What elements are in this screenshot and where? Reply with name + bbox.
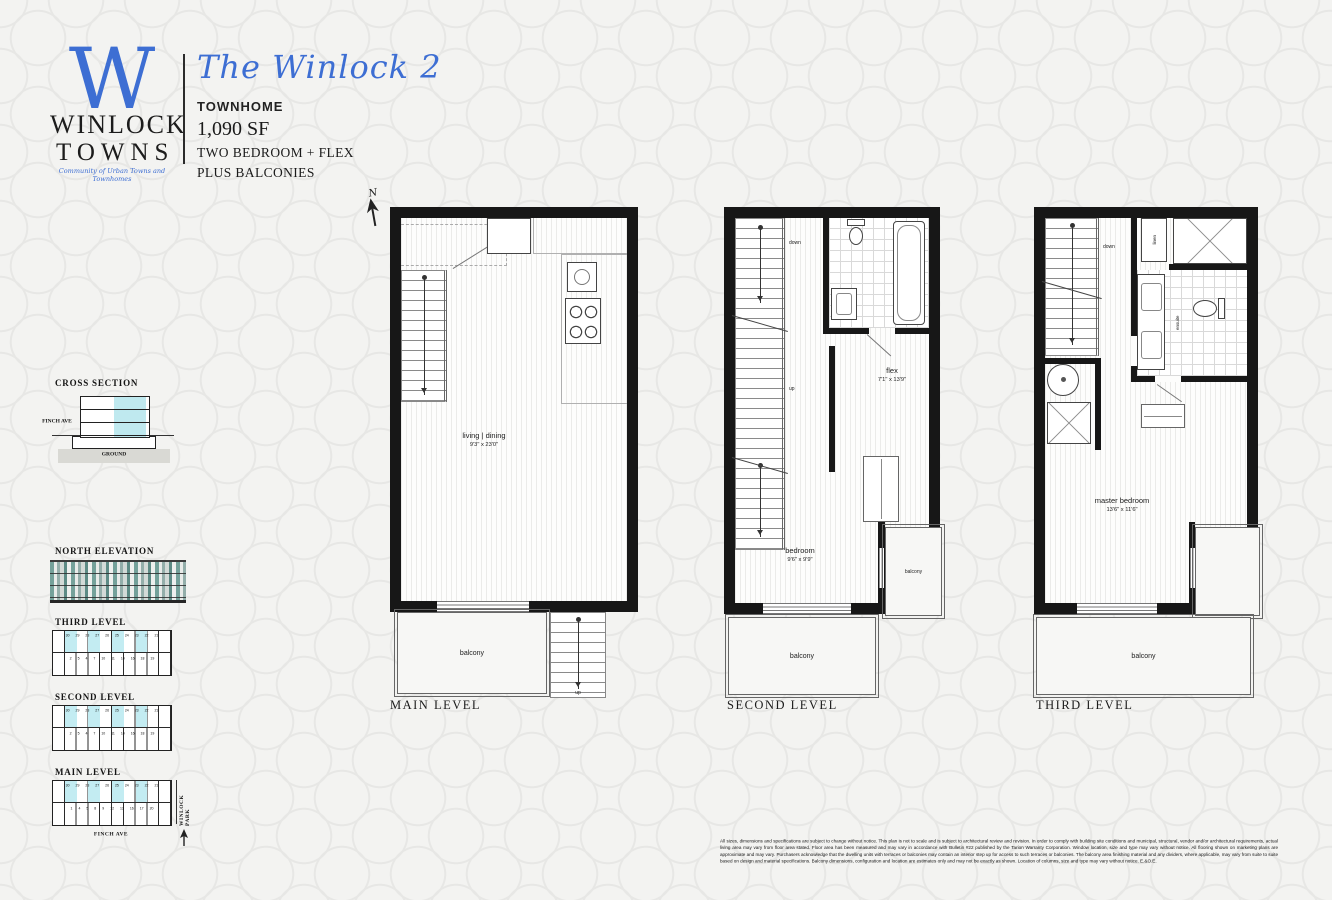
stairs	[735, 218, 785, 550]
keyplan-main-level: MAIN LEVEL 30 29 28 27 26 25 24 23 22 21…	[50, 767, 220, 857]
toilet-tank	[847, 219, 865, 226]
building-section	[80, 396, 150, 438]
unit-area: 1,090 SF	[197, 118, 557, 141]
keyplan-main-strip: 30 29 28 27 26 25 24 23 22 21 1 4 5 8 9 …	[52, 780, 172, 826]
unit-numbers-bottom: 2 5 4 7 10 11 14 16 18 19	[53, 657, 171, 661]
down-label: down	[1103, 244, 1115, 250]
street-label: FINCH AVE	[52, 831, 170, 837]
wall	[823, 218, 829, 334]
keyplan-main-title: MAIN LEVEL	[55, 767, 121, 777]
building-type: TOWNHOME	[197, 99, 557, 114]
toilet	[849, 227, 863, 245]
washer-knob	[1061, 377, 1066, 382]
wall	[1095, 360, 1101, 450]
keyplan-second-title: SECOND LEVEL	[55, 692, 135, 702]
cross-section-diagram: FINCH AVE GROUND	[50, 394, 190, 470]
balcony-label: balcony	[1131, 653, 1155, 660]
exterior-stairs: up	[550, 612, 606, 698]
wall	[829, 346, 835, 472]
toilet	[1193, 300, 1217, 317]
brand-monogram: W	[50, 42, 174, 118]
cross-section: CROSS SECTION FINCH AVE GROUND	[50, 378, 190, 474]
unit-numbers-bottom: 2 5 4 7 10 11 14 16 18 19	[53, 732, 171, 736]
window	[879, 548, 884, 588]
street-label: FINCH AVE	[42, 418, 72, 425]
closet	[863, 456, 899, 522]
linen-closet: linen	[1141, 218, 1167, 262]
brand-name-top: WINLOCK	[50, 112, 174, 138]
stair-direction-arrow	[1072, 225, 1073, 345]
floorplan-second-level: down up flex 7'1" x 13'9" bedroom 9'6" x…	[724, 207, 954, 717]
ground-label: GROUND	[84, 451, 144, 457]
closet-rod	[1144, 416, 1182, 417]
stove	[565, 298, 601, 344]
north-elevation-title: NORTH ELEVATION	[55, 546, 154, 556]
north-elevation: NORTH ELEVATION	[50, 546, 200, 604]
feature-line-1: TWO BEDROOM + FLEX	[197, 145, 557, 161]
keyplan-second-level: SECOND LEVEL 30 29 28 27 26 25 24 23 22 …	[50, 692, 200, 758]
stair-direction-arrow	[578, 619, 579, 689]
wall	[823, 328, 869, 334]
room-label-master-bedroom: master bedroom 13'6" x 11'6"	[1062, 496, 1182, 513]
ensuite-label: ensuite	[1175, 290, 1180, 330]
unit-numbers-top: 30 29 28 27 26 25 24 23 22 21	[53, 784, 171, 788]
sink-basin	[1141, 283, 1162, 311]
bathtub	[893, 221, 925, 325]
keyplan-second-strip: 30 29 28 27 26 25 24 23 22 21 2 5 4 7 10…	[52, 705, 172, 751]
elevation-drawing	[50, 560, 186, 603]
stair-direction-arrow	[760, 465, 761, 537]
keyplan-third-title: THIRD LEVEL	[55, 617, 126, 627]
room-label-flex: flex 7'1" x 13'9"	[832, 366, 952, 383]
fridge	[487, 218, 531, 254]
cross-section-title: CROSS SECTION	[55, 378, 138, 388]
stair-direction-arrow	[760, 227, 761, 303]
plan-caption-main: MAIN LEVEL	[390, 698, 481, 713]
sink-basin	[836, 293, 852, 315]
unit-numbers-top: 30 29 28 27 26 25 24 23 22 21	[53, 709, 171, 713]
wall	[895, 328, 929, 334]
tub-basin	[897, 225, 921, 321]
bathroom-sink	[831, 288, 857, 320]
closet-rod	[881, 459, 882, 519]
sink-basin	[1141, 331, 1162, 359]
header-divider	[183, 54, 185, 164]
balcony-side	[1195, 527, 1260, 616]
unit-outline: down linen ensuite master bedroom 13'6"	[1034, 207, 1258, 614]
balcony-side-label: balcony	[905, 569, 922, 575]
up-label: up	[789, 386, 795, 392]
room-label-living-dining: living | dining 9'3" x 23'0"	[424, 431, 544, 448]
floorplan-main-level: living | dining 9'3" x 23'0" balcony up …	[390, 207, 650, 717]
double-vanity	[1137, 274, 1165, 370]
door-swing	[1157, 384, 1182, 402]
down-label: down	[789, 240, 801, 246]
highlighted-unit-stack	[114, 397, 147, 437]
balcony: balcony	[1036, 617, 1251, 695]
wall	[1131, 376, 1247, 382]
door-opening	[1155, 376, 1181, 382]
brand-logo: W WINLOCK TOWNS Community of Urban Towns…	[50, 42, 174, 183]
washer	[1047, 364, 1079, 396]
keyplan-main-numbers: 30 29 28 27 26 25 24 23 22 21 1 4 5 8 9 …	[53, 781, 171, 825]
up-label: up	[551, 690, 605, 696]
disclaimer-block: All sizes, dimensions and specifications…	[720, 838, 1280, 878]
park-label: WINLOCK PARK	[179, 780, 191, 826]
keyplan-third-strip: 30 29 28 27 26 25 24 23 22 21 2 5 4 7 10…	[52, 630, 172, 676]
room-label-bedroom: bedroom 9'6" x 9'9"	[740, 546, 860, 563]
balcony: balcony	[728, 617, 876, 695]
kitchen-counter-top	[533, 218, 627, 254]
unit-numbers-top: 30 29 28 27 26 25 24 23 22 21	[53, 634, 171, 638]
window	[763, 603, 851, 614]
stair-break-line	[732, 315, 788, 332]
balcony-side: balcony	[885, 527, 942, 616]
stairs	[401, 270, 447, 402]
feature-line-2: PLUS BALCONIES	[197, 165, 557, 181]
wall	[1045, 358, 1101, 364]
balcony-label: balcony	[460, 650, 484, 657]
header: The Winlock 2 TOWNHOME 1,090 SF TWO BEDR…	[197, 48, 557, 181]
disclaimer-text: All sizes, dimensions and specifications…	[720, 838, 1278, 865]
window	[437, 601, 529, 612]
brand-name-bottom: TOWNS	[50, 140, 174, 165]
plan-caption-second: SECOND LEVEL	[727, 698, 838, 713]
window	[1190, 548, 1195, 588]
stair-direction-arrow	[424, 277, 425, 395]
page-title: The Winlock 2	[197, 48, 557, 86]
toilet-tank	[1218, 298, 1225, 319]
sink-basin	[574, 269, 590, 285]
shower	[1173, 218, 1247, 264]
park-boundary-line	[176, 780, 177, 824]
unit-outline: living | dining 9'3" x 23'0"	[390, 207, 638, 612]
laundry-closet	[1047, 402, 1091, 444]
stairs	[1045, 218, 1099, 356]
floorplan-third-level: down linen ensuite master bedroom 13'6"	[1034, 207, 1269, 717]
plan-caption-third: THIRD LEVEL	[1036, 698, 1133, 713]
closet	[1141, 404, 1185, 428]
north-label: N	[368, 187, 379, 199]
unit-numbers-bottom: 1 4 5 8 9 12 13 16 17 20	[53, 807, 171, 811]
keyplan-second-numbers: 30 29 28 27 26 25 24 23 22 21 2 5 4 7 10…	[53, 706, 171, 750]
keyplan-north-arrow-icon	[178, 829, 190, 852]
kitchen-sink	[567, 262, 597, 292]
window	[1077, 603, 1157, 614]
balcony-label: balcony	[790, 653, 814, 660]
door-swing	[867, 334, 892, 356]
unit-outline: down up flex 7'1" x 13'9" bedroom 9'6" x…	[724, 207, 940, 614]
keyplan-third-level: THIRD LEVEL 30 29 28 27 26 25 24 23 22 2…	[50, 617, 200, 683]
balcony: balcony	[397, 612, 547, 694]
keyplan-third-numbers: 30 29 28 27 26 25 24 23 22 21 2 5 4 7 10…	[53, 631, 171, 675]
brand-tagline: Community of Urban Towns and Townhomes	[50, 167, 174, 183]
linen-label: linen	[1152, 235, 1157, 245]
wall	[1169, 264, 1247, 270]
